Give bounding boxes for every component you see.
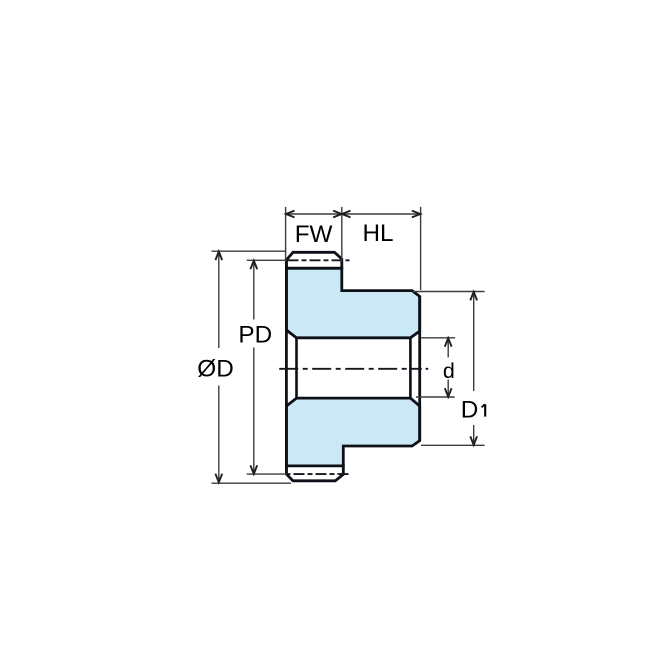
svg-text:D: D (461, 396, 479, 423)
svg-text:d: d (443, 359, 455, 383)
svg-text:FW: FW (295, 221, 333, 248)
svg-text:HL: HL (363, 220, 394, 247)
svg-text:ØD: ØD (197, 355, 233, 382)
svg-text:PD: PD (238, 321, 272, 348)
